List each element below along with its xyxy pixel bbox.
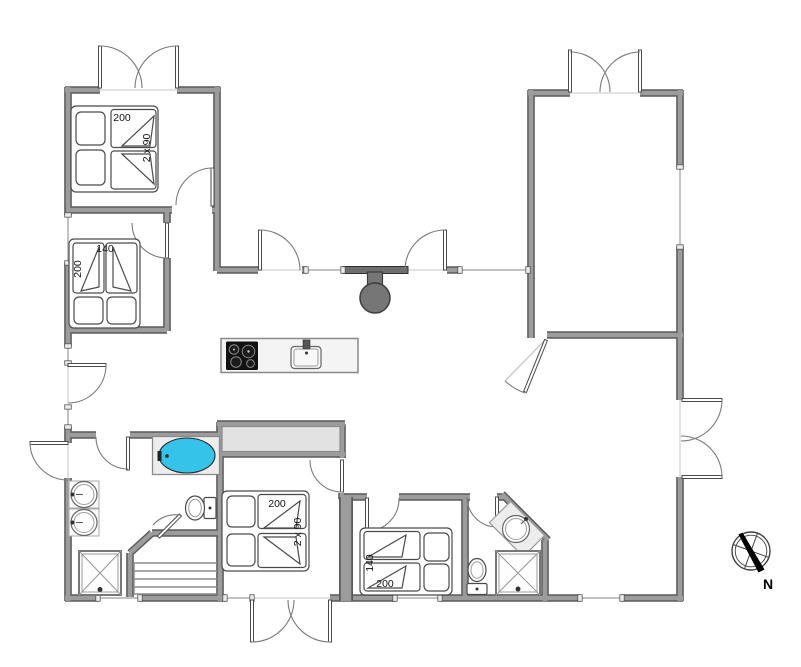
pillow [227, 496, 255, 527]
door-hall-west [68, 364, 106, 404]
door-bedroom1 [176, 168, 214, 206]
floor-plan-canvas: 200 2 x 90 140 200 200 2 x 90 140 200 N [0, 0, 801, 667]
pillow [76, 112, 105, 145]
patio-door-nw [99, 46, 179, 88]
door-bedroom4 [366, 498, 400, 531]
kitchen-island [221, 339, 358, 373]
patio-door-annex [569, 50, 642, 92]
bed2-width-label: 140 [96, 243, 114, 255]
bathroom1 [69, 437, 220, 596]
pillow [74, 297, 103, 324]
bed1-length-label: 200 [113, 112, 131, 124]
bed1-width-label: 2 x 90 [141, 134, 153, 163]
pillow [76, 150, 105, 185]
sauna-benches [134, 563, 217, 594]
bed4-width-label: 140 [364, 554, 376, 572]
north-label: N [763, 576, 773, 592]
bathroom2 [467, 501, 545, 595]
compass-rose: N [732, 532, 773, 592]
door-livingroom-left [259, 230, 301, 270]
bathtub-faucet-icon [158, 451, 162, 461]
double-sink [69, 481, 99, 536]
door-bathroom1 [96, 437, 130, 470]
door-diagonal-living [505, 339, 547, 393]
pillow [227, 534, 255, 566]
cooktop-icon [226, 342, 258, 371]
bed4-length-label: 200 [376, 578, 394, 590]
patio-door-south [251, 600, 332, 642]
toilet-icon-2 [467, 559, 487, 595]
door-livingroom-right [405, 230, 447, 270]
bed3-width-label: 2 x 90 [292, 518, 304, 547]
bed2-length-label: 200 [72, 260, 84, 278]
toilet-icon-1 [186, 496, 217, 520]
shower-cabin-2 [496, 551, 540, 595]
wood-stove-icon [360, 272, 390, 313]
entrance-door [30, 442, 68, 481]
pillow [424, 564, 449, 591]
shower-cabin-1 [79, 551, 121, 595]
door-bedroom3 [310, 460, 344, 492]
wardrobe [222, 427, 340, 452]
bed3-length-label: 200 [268, 498, 286, 510]
patio-door-east [681, 399, 722, 479]
pillow [107, 297, 136, 324]
pillow [424, 533, 449, 561]
floor-plan: 200 2 x 90 140 200 200 2 x 90 140 200 N [0, 0, 801, 667]
thresholds [68, 90, 680, 598]
